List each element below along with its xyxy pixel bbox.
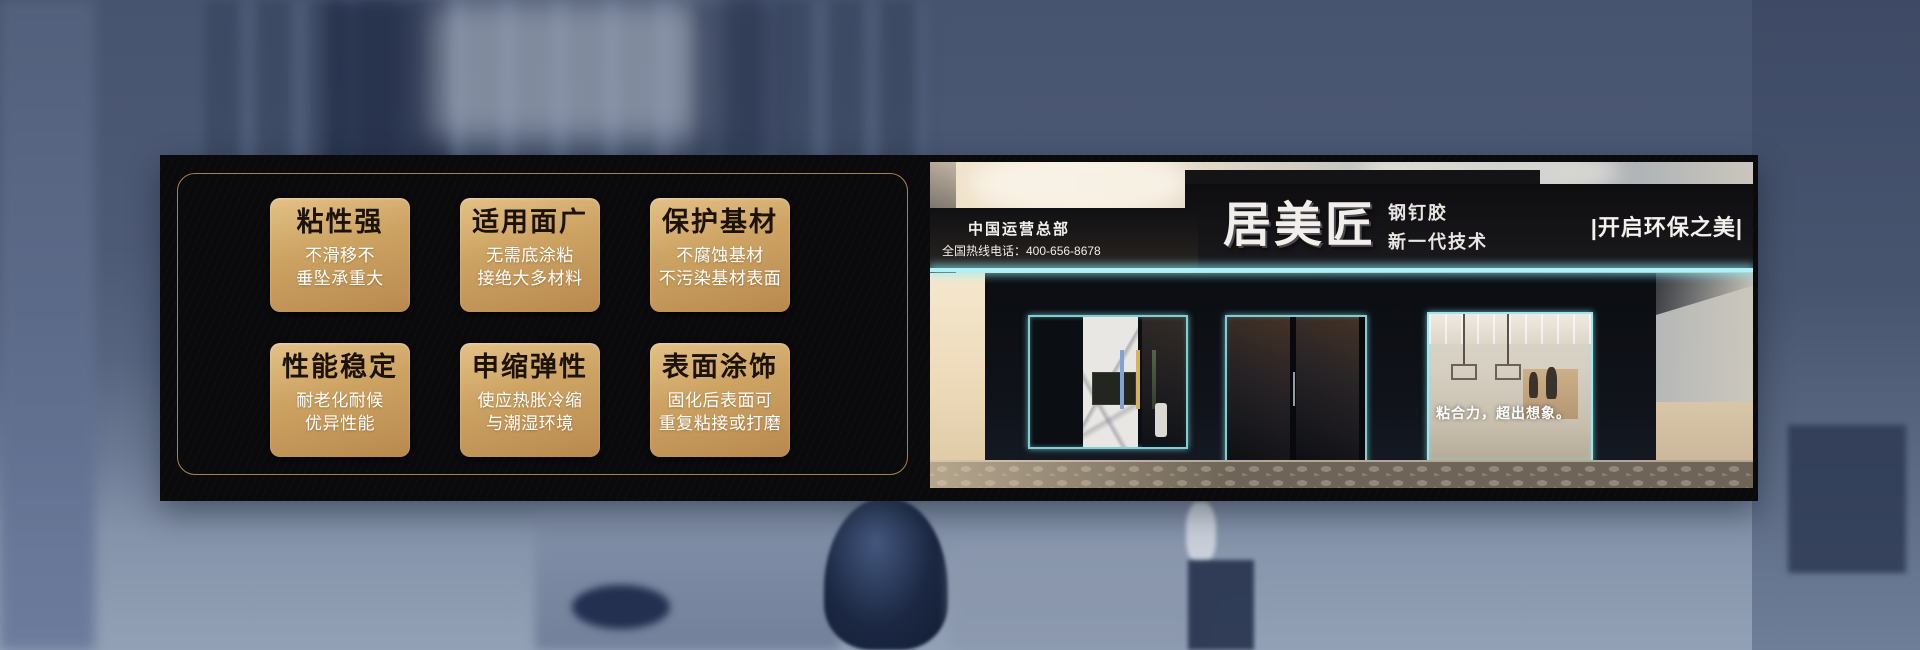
feature-title: 表面涂饰 [662, 354, 778, 381]
feature-title: 保护基材 [662, 209, 778, 236]
feature-card-wide-use: 适用面广 无需底涂粘 接绝大多材料 [460, 198, 600, 312]
left-display-window [1028, 315, 1188, 449]
feature-title: 粘性强 [297, 209, 384, 236]
white-cylinder [1155, 403, 1167, 437]
brand-name: 居美匠 [1223, 202, 1376, 250]
background-bowl [572, 585, 670, 629]
product-shelf-item [1136, 350, 1140, 410]
sunlit-pavement [930, 460, 1230, 488]
feature-line: 不腐蚀基材 [676, 245, 764, 268]
pendant-frame [1451, 364, 1477, 380]
feature-card-protect: 保护基材 不腐蚀基材 不污染基材表面 [650, 198, 790, 312]
feature-title: 性能稳定 [282, 354, 398, 381]
feature-line: 接绝大多材料 [478, 268, 583, 291]
background-cabinet [1188, 560, 1254, 650]
feature-title: 适用面广 [472, 209, 588, 236]
tech-tagline: 新一代技术 [1388, 228, 1488, 254]
pendant-light [1507, 314, 1509, 366]
hq-signboard: 中国运营总部 全国热线电话：400-656-8678 [930, 208, 1198, 268]
feature-line: 重复粘接或打磨 [659, 413, 782, 436]
hotline-number: 全国热线电话：400-656-8678 [942, 242, 1198, 259]
door-glass-right [1296, 317, 1365, 463]
feature-card-elastic: 申缩弹性 使应热胀冷缩 与潮湿环境 [460, 343, 600, 457]
right-display-window: 粘合力，超出想象。 [1427, 312, 1593, 462]
figurine [1546, 367, 1557, 399]
eco-slogan: |开启环保之美| [1591, 210, 1743, 242]
figurine [1529, 372, 1538, 398]
background-light-wall [430, 0, 715, 140]
brand-subtitle: 钢钉胶 新一代技术 [1388, 199, 1488, 254]
feature-line: 优异性能 [305, 413, 375, 436]
feature-line: 不污染基材表面 [659, 268, 782, 291]
feature-line: 耐老化耐候 [296, 390, 384, 413]
canopy-shadow [1656, 273, 1753, 315]
ground-left [930, 273, 990, 488]
pendant-frame [1495, 364, 1521, 380]
feature-card-grid: 粘性强 不滑移不 垂坠承重大 适用面广 无需底涂粘 接绝大多材料 保护基材 不腐… [270, 198, 790, 457]
product-shelf-item [1120, 350, 1124, 410]
feature-line: 垂坠承重大 [296, 268, 384, 291]
door-glass-left [1227, 317, 1296, 463]
background-counter [950, 540, 1215, 650]
feature-title: 申缩弹性 [472, 354, 588, 381]
feature-card-finish: 表面涂饰 固化后表面可 重复粘接或打磨 [650, 343, 790, 457]
feature-line: 与潮湿环境 [486, 413, 574, 436]
entrance-door [1225, 315, 1367, 465]
window-slogan: 粘合力，超出想象。 [1436, 403, 1571, 423]
product-name: 钢钉胶 [1388, 199, 1488, 225]
hq-label: 中国运营总部 [968, 218, 1198, 239]
main-signboard: 居美匠 钢钉胶 新一代技术 |开启环保之美| [1185, 184, 1753, 268]
background-dark-panel-2 [693, 0, 778, 160]
storefront-photo: 居美匠 钢钉胶 新一代技术 |开启环保之美| 中国运营总部 全国热线电话：400… [930, 162, 1753, 488]
promo-banner: 粘性强 不滑移不 垂坠承重大 适用面广 无需底涂粘 接绝大多材料 保护基材 不腐… [160, 155, 1758, 501]
background-sculpture [1186, 502, 1216, 564]
door-handle [1293, 372, 1295, 406]
neon-strip [930, 268, 1753, 272]
feature-line: 无需底涂粘 [486, 245, 574, 268]
feature-line: 固化后表面可 [668, 390, 773, 413]
display-board [1092, 372, 1136, 406]
background-table [535, 508, 840, 650]
interior-ceiling [1429, 314, 1591, 344]
feature-card-adhesion: 粘性强 不滑移不 垂坠承重大 [270, 198, 410, 312]
feature-card-stable: 性能稳定 耐老化耐候 优异性能 [270, 343, 410, 457]
feature-line: 使应热胀冷缩 [478, 390, 583, 413]
feature-line: 不滑移不 [305, 245, 375, 268]
pendant-light [1463, 314, 1465, 366]
